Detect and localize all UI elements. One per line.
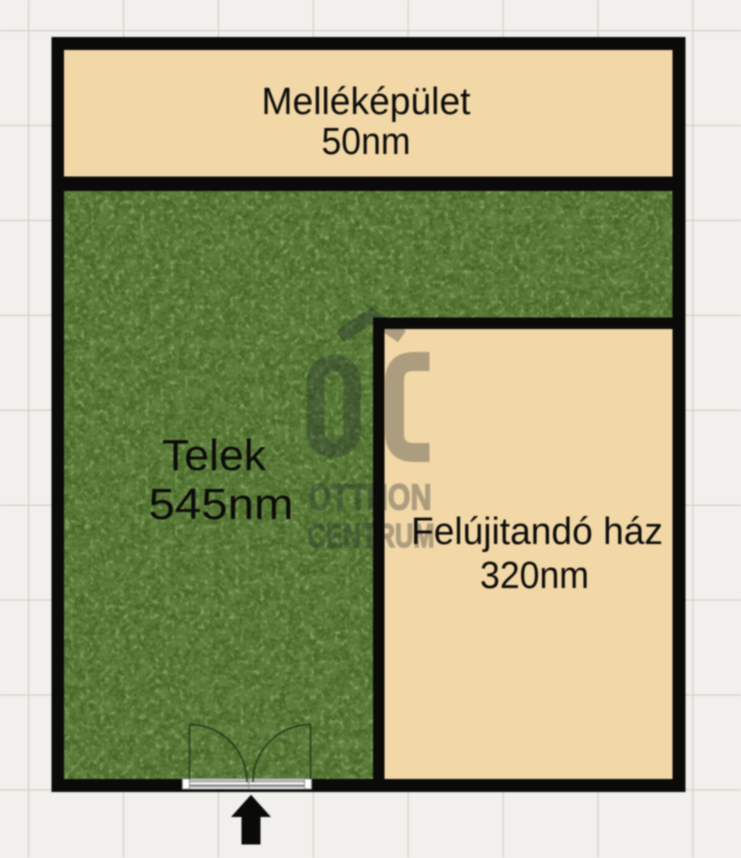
svg-text:Felújitandó ház: Felújitandó ház	[411, 511, 663, 553]
svg-text:Telek: Telek	[162, 431, 267, 480]
svg-text:545nm: 545nm	[149, 480, 294, 529]
svg-text:50nm: 50nm	[322, 121, 411, 163]
svg-text:Melléképület: Melléképület	[262, 81, 471, 123]
svg-text:320nm: 320nm	[480, 555, 589, 597]
